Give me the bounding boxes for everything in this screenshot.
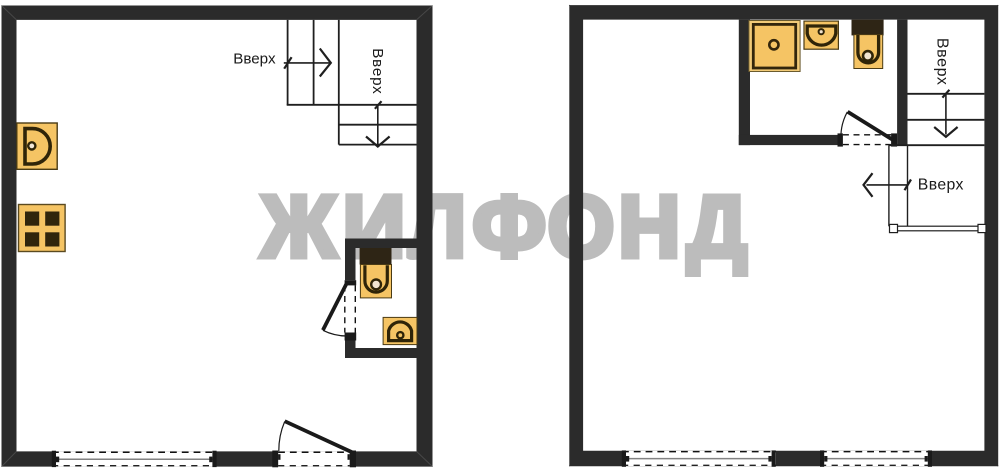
svg-text:Вверх: Вверх [934, 38, 951, 86]
svg-text:Ж: Ж [260, 178, 337, 275]
svg-text:Вверх: Вверх [918, 176, 964, 193]
svg-text:Д: Д [687, 179, 747, 276]
svg-text:Ф: Ф [473, 179, 546, 276]
svg-text:Н: Н [619, 179, 681, 276]
svg-text:Вверх: Вверх [233, 50, 276, 67]
svg-text:Вверх: Вверх [369, 48, 386, 94]
